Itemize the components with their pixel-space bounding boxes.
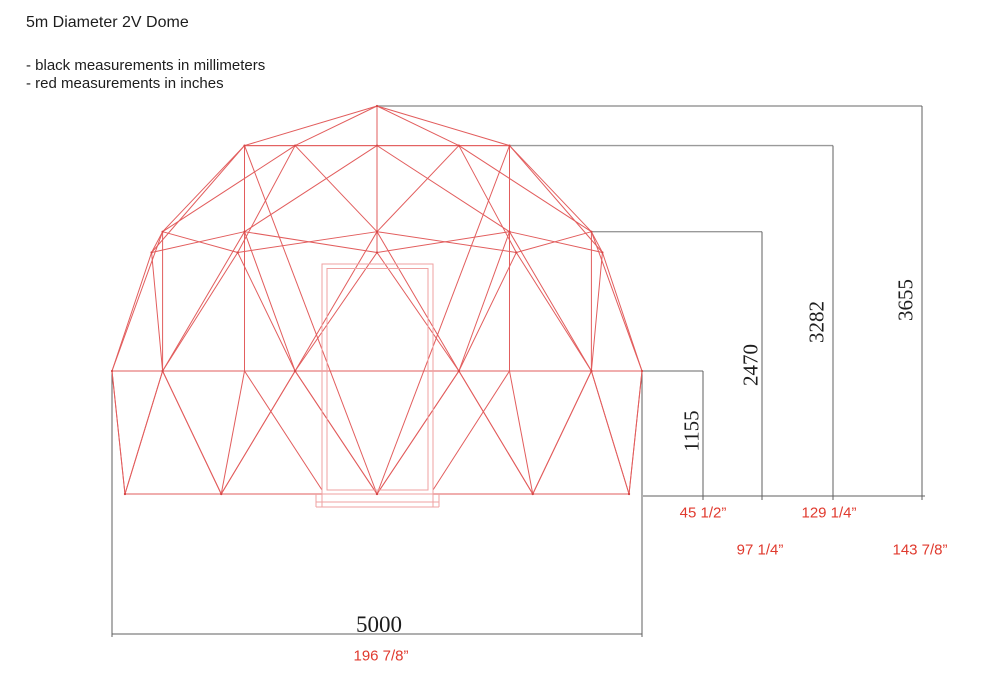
- dim-in-3655: 143 7/8”: [892, 542, 947, 559]
- drawing-title: 5m Diameter 2V Dome: [26, 14, 189, 32]
- dome-wireframe: [112, 106, 642, 494]
- dim-in-2470: 97 1/4”: [737, 542, 784, 559]
- legend-red-note: - red measurements in inches: [26, 75, 224, 92]
- legend-black-note: - black measurements in millimeters: [26, 57, 265, 74]
- dim-mm-3282: 3282: [805, 301, 830, 343]
- dim-in-5000: 196 7/8”: [353, 648, 408, 665]
- dim-in-1155: 45 1/2”: [680, 505, 727, 522]
- dim-in-3282: 129 1/4”: [801, 505, 856, 522]
- dim-mm-1155: 1155: [680, 410, 705, 451]
- dim-mm-5000: 5000: [356, 612, 402, 638]
- dome-elevation-drawing: [0, 0, 990, 700]
- drawing-sheet: { "title": "5m Diameter 2V Dome", "legen…: [0, 0, 990, 700]
- door-frame: [316, 264, 439, 507]
- dim-mm-2470: 2470: [739, 344, 764, 386]
- dim-mm-3655: 3655: [894, 279, 919, 321]
